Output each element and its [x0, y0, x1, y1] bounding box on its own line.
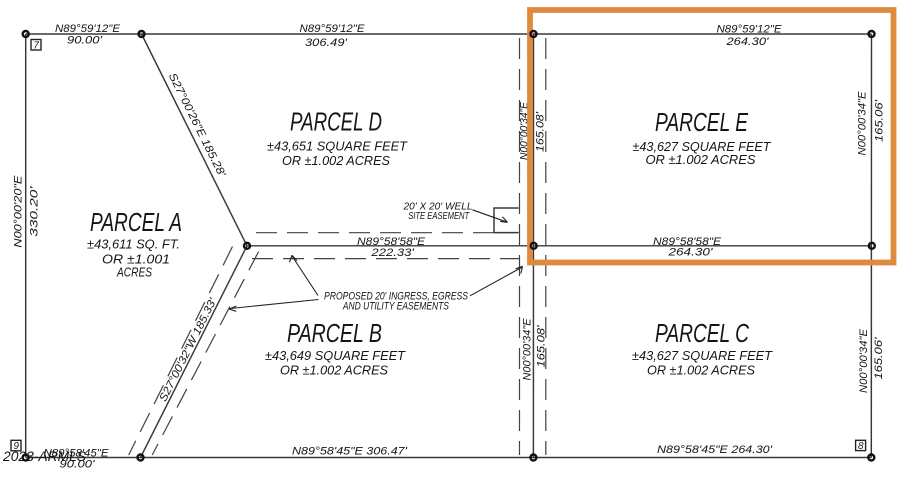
svg-text:ACRES: ACRES: [116, 266, 152, 280]
svg-text:AND UTILITY EASEMENTS: AND UTILITY EASEMENTS: [342, 301, 449, 313]
svg-text:PARCEL D: PARCEL D: [290, 107, 382, 137]
svg-text:165.08': 165.08': [536, 324, 548, 367]
svg-text:N00°00'34"E: N00°00'34"E: [858, 328, 870, 393]
svg-text:N89°59'12"E: N89°59'12"E: [717, 24, 783, 36]
svg-text:PARCEL B: PARCEL B: [287, 318, 382, 348]
svg-text:8: 8: [858, 441, 864, 452]
svg-text:7: 7: [33, 40, 39, 51]
svg-text:±43,627 SQUARE FEET: ±43,627 SQUARE FEET: [632, 349, 773, 363]
svg-text:±43,611 SQ. FT.: ±43,611 SQ. FT.: [87, 238, 180, 252]
svg-text:N89°59'12"E: N89°59'12"E: [300, 23, 366, 35]
svg-text:N00°00'34"E: N00°00'34"E: [857, 91, 869, 156]
svg-text:±43,651 SQUARE FEET: ±43,651 SQUARE FEET: [267, 140, 408, 154]
svg-text:165.06': 165.06': [874, 99, 886, 142]
svg-text:N89°58'45"E 306.47': N89°58'45"E 306.47': [292, 446, 408, 458]
svg-text:90.00': 90.00': [67, 35, 103, 47]
svg-text:PARCEL E: PARCEL E: [655, 107, 748, 137]
svg-text:OR ±1.002 ACRES: OR ±1.002 ACRES: [280, 364, 389, 378]
svg-text:N00°00'34"E: N00°00'34"E: [522, 318, 534, 381]
svg-text:222.33': 222.33': [370, 247, 415, 259]
svg-text:264.30': 264.30': [667, 247, 713, 259]
svg-text:165.06': 165.06': [873, 336, 885, 379]
svg-text:OR ±1.001: OR ±1.001: [102, 253, 170, 267]
svg-text:PARCEL C: PARCEL C: [655, 318, 749, 348]
svg-text:2023-ARMLS: 2023-ARMLS: [2, 448, 87, 464]
svg-text:±43,627 SQUARE FEET: ±43,627 SQUARE FEET: [633, 140, 772, 154]
svg-text:OR ±1.002 ACRES: OR ±1.002 ACRES: [646, 153, 757, 167]
svg-text:N00°00'20"E: N00°00'20"E: [13, 175, 25, 248]
svg-text:N89°58'45"E 264.30': N89°58'45"E 264.30': [657, 444, 773, 456]
svg-text:264.30': 264.30': [725, 36, 769, 48]
svg-text:OR ±1.002 ACRES: OR ±1.002 ACRES: [647, 364, 756, 378]
svg-text:306.49': 306.49': [305, 37, 348, 49]
svg-text:N89°59'12"E: N89°59'12"E: [55, 23, 121, 35]
svg-text:±43,649 SQUARE FEET: ±43,649 SQUARE FEET: [265, 349, 406, 363]
svg-text:PARCEL A: PARCEL A: [90, 207, 182, 237]
svg-text:OR ±1.002 ACRES: OR ±1.002 ACRES: [282, 154, 391, 168]
svg-text:330.20': 330.20': [29, 185, 41, 236]
svg-text:165.08': 165.08': [535, 111, 547, 152]
svg-text:SITE EASEMENT: SITE EASEMENT: [408, 211, 470, 222]
